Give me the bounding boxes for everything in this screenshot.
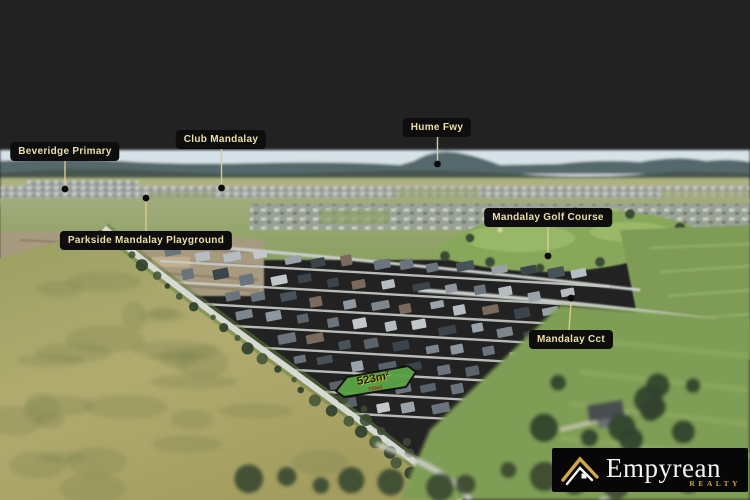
empyrean-realty-logo: Empyrean REALTY <box>552 448 748 492</box>
map-label-mandalay-cct: Mandalay Cct <box>529 330 613 349</box>
logo-tagline-text: REALTY <box>689 479 741 488</box>
map-label-parkside-mandalay-playground: Parkside Mandalay Playground <box>60 231 232 250</box>
empyrean-roof-icon <box>561 454 599 486</box>
logo-brand-text: Empyrean <box>606 455 721 482</box>
map-label-club-mandalay: Club Mandalay <box>176 130 266 149</box>
landscape <box>0 0 750 500</box>
map-label-mandalay-golf-course: Mandalay Golf Course <box>484 208 612 227</box>
map-label-hume-fwy: Hume Fwy <box>403 118 471 137</box>
aerial-property-photo: 523m² 523m² Titled Beveridge Primary Clu… <box>0 0 750 500</box>
map-label-beveridge-primary: Beveridge Primary <box>10 142 119 161</box>
